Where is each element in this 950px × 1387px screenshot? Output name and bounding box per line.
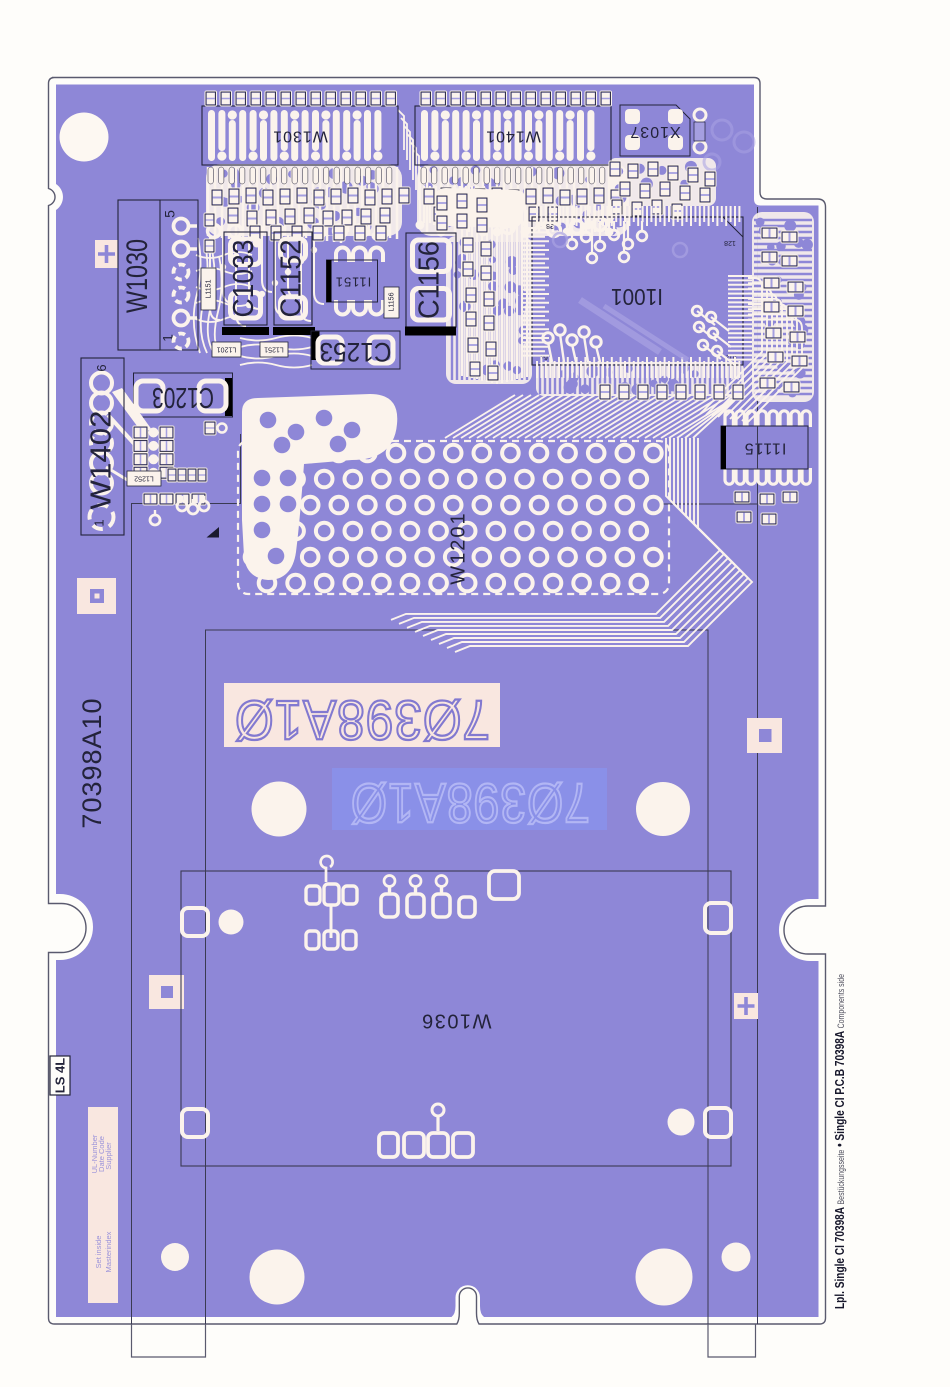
svg-text:W1301: W1301 bbox=[272, 127, 328, 144]
svg-text:L1251: L1251 bbox=[264, 346, 284, 353]
svg-text:7Ø398A1Ø: 7Ø398A1Ø bbox=[350, 772, 590, 835]
svg-text:I1151: I1151 bbox=[335, 275, 372, 290]
svg-text:L1151: L1151 bbox=[205, 279, 212, 298]
svg-text:C1152: C1152 bbox=[276, 240, 308, 318]
svg-text:Masterindex: Masterindex bbox=[104, 1231, 113, 1272]
svg-text:C1203: C1203 bbox=[152, 381, 214, 413]
svg-text:W1201: W1201 bbox=[447, 511, 469, 584]
svg-text:128: 128 bbox=[724, 239, 736, 246]
svg-text:70398A10: 70398A10 bbox=[77, 697, 107, 828]
svg-text:W1036: W1036 bbox=[421, 1010, 492, 1032]
svg-text:LS 4L: LS 4L bbox=[52, 1058, 67, 1093]
svg-text:7Ø398A1Ø: 7Ø398A1Ø bbox=[234, 689, 490, 752]
svg-text:X1037: X1037 bbox=[629, 123, 680, 140]
svg-text:W1402: W1402 bbox=[86, 411, 118, 510]
svg-text:I1001: I1001 bbox=[611, 284, 663, 310]
svg-text:1: 1 bbox=[91, 519, 106, 526]
svg-text:C1253: C1253 bbox=[320, 337, 392, 367]
svg-text:C1156: C1156 bbox=[414, 241, 446, 319]
svg-text:L1201: L1201 bbox=[217, 346, 237, 353]
svg-text:L1156: L1156 bbox=[388, 292, 395, 311]
svg-text:C1033: C1033 bbox=[228, 240, 260, 318]
svg-text:Set inside: Set inside bbox=[94, 1236, 103, 1269]
svg-text:Supplier: Supplier bbox=[104, 1142, 113, 1170]
svg-text:5: 5 bbox=[162, 210, 178, 218]
svg-text:I1115: I1115 bbox=[744, 439, 787, 456]
svg-text:W1401: W1401 bbox=[485, 127, 541, 144]
svg-text:6: 6 bbox=[94, 364, 109, 371]
svg-text:W1030: W1030 bbox=[121, 239, 154, 313]
svg-text:L1252: L1252 bbox=[134, 475, 154, 482]
